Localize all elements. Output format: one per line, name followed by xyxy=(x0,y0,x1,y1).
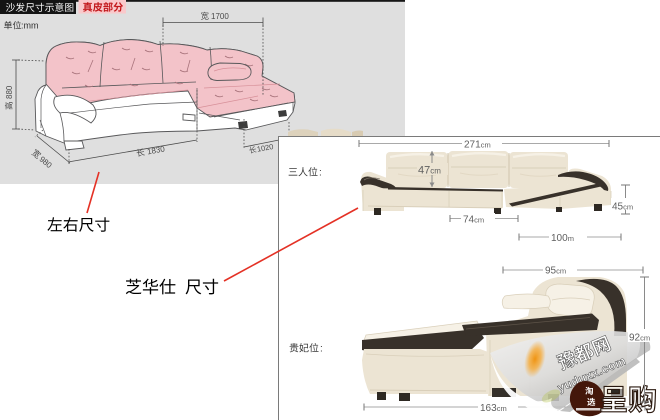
svg-text:1700: 1700 xyxy=(211,12,229,21)
svg-text:163cm: 163cm xyxy=(480,403,507,414)
svg-text:271cm: 271cm xyxy=(464,140,491,151)
svg-text:880: 880 xyxy=(5,85,14,99)
svg-text:95cm: 95cm xyxy=(545,266,566,277)
svg-text:92cm: 92cm xyxy=(629,333,650,344)
svg-text:47cm: 47cm xyxy=(418,165,441,177)
svg-text::: : xyxy=(319,168,322,179)
svg-text::: : xyxy=(320,344,323,355)
svg-text:100m: 100m xyxy=(551,233,574,244)
svg-text::mm: :mm xyxy=(21,21,39,31)
svg-text:45cm: 45cm xyxy=(612,202,633,213)
svg-text:74cm: 74cm xyxy=(463,215,484,226)
